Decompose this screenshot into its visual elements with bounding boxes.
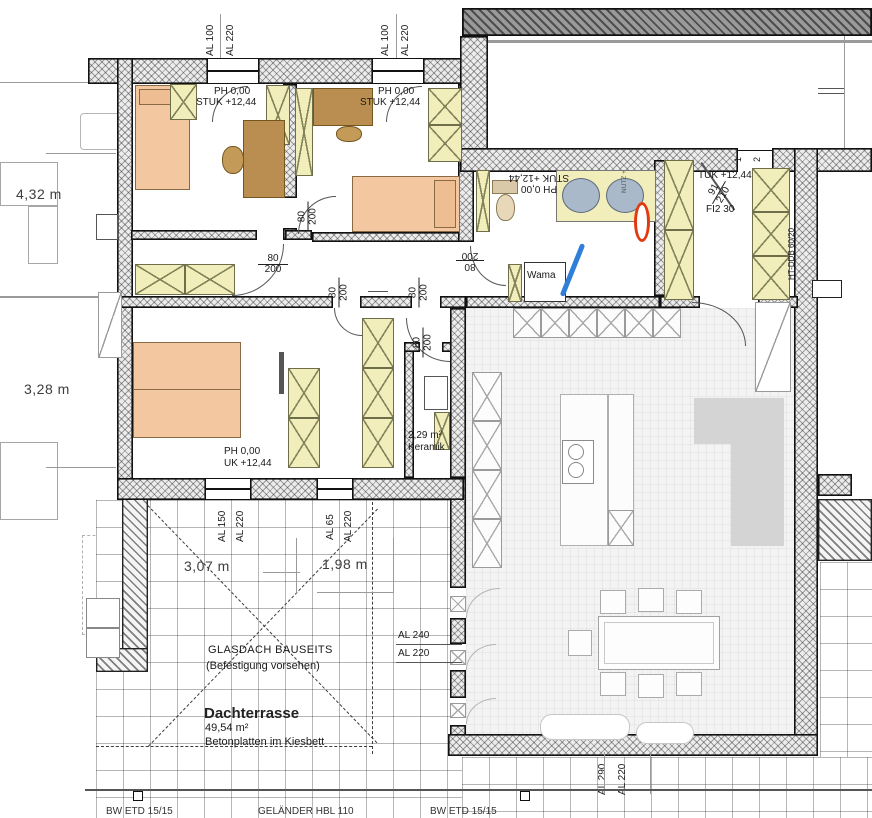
window-label: AL 150 <box>217 511 228 542</box>
door-height: 200 <box>456 250 484 260</box>
kitchen-appliance <box>608 510 634 546</box>
dining-chair <box>600 590 626 614</box>
dimension-label: 3,07 m <box>184 558 230 574</box>
wall <box>131 230 257 240</box>
door-size-label: 80 200 <box>413 328 434 358</box>
kitchen-cabinet <box>541 308 569 338</box>
wardrobe <box>664 160 694 230</box>
folding-door-panel <box>450 596 466 612</box>
door-size-label: 80 200 <box>456 250 484 271</box>
radiator <box>279 352 284 394</box>
level-label-upside-down: PH 0,00 STUK +12,44 <box>504 172 574 194</box>
terrace-name: Dachterrasse <box>204 705 299 722</box>
wall <box>818 474 852 496</box>
folding-door-panel <box>450 703 466 718</box>
window-label: AL 100 <box>205 25 216 56</box>
wall-edge-line <box>478 40 872 43</box>
wardrobe <box>288 368 320 418</box>
wall <box>440 296 466 308</box>
window-label: AL 220 <box>235 511 246 542</box>
window-label: AL 220 <box>400 25 411 56</box>
bath-cabinet <box>508 264 522 302</box>
washing-machine-label: Wama <box>527 270 556 281</box>
dining-table <box>598 616 720 670</box>
door-swing-arc <box>334 308 362 336</box>
level-line: STUK +12,44 <box>504 172 574 183</box>
wall <box>404 342 414 478</box>
wall <box>258 58 373 84</box>
door-size-label: 80 200 <box>409 278 430 308</box>
window <box>206 478 250 500</box>
kitchen-tall-cabinet <box>472 470 502 519</box>
terrace-note: Betonplatten im Kiesbett <box>205 737 324 748</box>
adjacent-building-wall <box>462 8 872 36</box>
radiator-niche <box>96 214 118 240</box>
neighbor-furniture <box>0 442 58 520</box>
dimension-label: 1,98 m <box>322 556 368 572</box>
burner <box>568 462 584 478</box>
kitchen-tall-cabinet <box>472 372 502 421</box>
shelf <box>295 88 313 176</box>
level-label: UK +12,44 <box>224 458 272 469</box>
door-size-label: 80 200 <box>298 202 319 232</box>
door-height: 200 <box>258 265 288 275</box>
sofa-cushion <box>540 714 630 740</box>
desk <box>243 120 285 198</box>
post-marker <box>133 791 143 801</box>
window-label: AL 65 <box>325 514 336 540</box>
shower <box>424 376 448 410</box>
break-symbol <box>818 88 844 89</box>
wardrobe <box>362 318 394 368</box>
wall <box>450 618 466 644</box>
duct-label: HT-DDB 60/20 <box>786 228 797 280</box>
bed-pillow <box>434 180 456 228</box>
kitchen-cabinet <box>597 308 625 338</box>
floor-plan: Wama 80 200 80 <box>0 0 872 818</box>
dimension-label: 4,32 m <box>16 186 62 202</box>
bath-area-label: 2,29 m² <box>408 430 442 441</box>
door-size-label: 80 200 <box>258 254 288 275</box>
wall <box>450 670 466 698</box>
wall <box>88 58 208 84</box>
dimension-line <box>46 467 116 468</box>
door-height: 200 <box>420 278 430 308</box>
terrace-parapet <box>122 478 148 658</box>
wall <box>250 478 318 500</box>
terrace-edge-box <box>86 598 120 628</box>
window-label: AL 220 <box>398 648 429 659</box>
level-label: PH 0,00 <box>378 86 414 97</box>
window <box>318 478 352 500</box>
kitchen-tall-cabinet <box>472 519 502 568</box>
window-label: AL 220 <box>225 25 236 56</box>
edge-label: GELÄNDER HBL 110 <box>258 806 354 817</box>
sofa-cushion <box>636 722 694 744</box>
dimension-line <box>317 592 393 593</box>
wall <box>360 296 412 308</box>
wardrobe <box>288 418 320 468</box>
wardrobe <box>428 125 462 162</box>
glass-roof-label: (Befestigung vorsehen) <box>206 661 320 672</box>
door-width: 80 <box>456 260 484 271</box>
position-tag: 2 <box>752 157 763 162</box>
window <box>208 58 258 84</box>
wall <box>117 58 133 500</box>
wardrobe <box>362 368 394 418</box>
door-height: 200 <box>309 202 319 232</box>
dimension-line <box>263 572 300 573</box>
kitchen-counter <box>608 394 634 516</box>
bath-cabinet <box>476 170 490 232</box>
kitchen-cabinet <box>625 308 653 338</box>
wardrobe <box>428 88 462 125</box>
wall-edge-line <box>844 36 845 148</box>
wall <box>117 478 206 500</box>
post-marker <box>520 791 530 801</box>
glass-roof-outline <box>372 502 373 754</box>
wardrobe <box>185 264 235 295</box>
direction-arrow <box>368 291 388 292</box>
kitchen-cabinet <box>513 308 541 338</box>
toilet-bowl <box>496 194 515 221</box>
dresser <box>170 84 197 120</box>
kitchen-tall-cabinet <box>472 421 502 470</box>
level-label: PH 0,00 <box>224 446 260 457</box>
entry-door-note: FI2 30 <box>706 204 734 215</box>
wall <box>450 308 466 478</box>
sofa <box>694 398 784 444</box>
terrace-floor <box>96 500 462 818</box>
washing-machine <box>524 262 566 302</box>
wall <box>448 734 818 756</box>
dining-chair <box>638 588 664 612</box>
level-line: PH 0,00 <box>504 183 574 194</box>
wardrobe <box>664 230 694 300</box>
dining-chair <box>600 672 626 696</box>
dimension-line <box>46 153 116 154</box>
wall <box>460 36 488 150</box>
kitchen-cabinet <box>569 308 597 338</box>
tiny-note: NUTZ + <box>619 170 630 193</box>
wardrobe <box>135 264 185 295</box>
leader-line <box>650 752 651 794</box>
terrace-area: 49,54 m² <box>205 723 248 734</box>
duct-box <box>812 280 842 298</box>
wall <box>460 148 738 172</box>
level-label: PH 0,00 <box>214 86 250 97</box>
terrace-edge-box <box>86 628 120 658</box>
desk-chair <box>336 126 362 142</box>
railing-line <box>85 789 872 791</box>
tall-cabinet <box>755 302 791 392</box>
dimension-line <box>296 538 297 593</box>
position-tag: 1 <box>733 157 744 162</box>
window-label: AL 100 <box>380 25 391 56</box>
leader-line <box>604 752 605 794</box>
dimension-line <box>393 538 394 593</box>
wardrobe <box>752 212 790 256</box>
glass-roof-label: GLASDACH BAUSEITS <box>208 645 333 656</box>
dining-chair <box>676 590 702 614</box>
red-annotation-oval <box>634 202 650 242</box>
wardrobe <box>362 418 394 468</box>
dining-chair <box>638 674 664 698</box>
burner <box>568 444 584 460</box>
wardrobe <box>752 256 790 300</box>
window-label: AL 240 <box>398 630 429 641</box>
neighbor-furniture <box>28 206 58 264</box>
entry-level-label: TUK +12,44 <box>698 170 752 181</box>
dining-chair <box>676 672 702 696</box>
leader-line <box>220 14 221 58</box>
shaft <box>98 292 122 358</box>
label-line <box>396 662 462 663</box>
door-size-label: 80 200 <box>329 278 350 308</box>
wall <box>794 148 818 748</box>
edge-label: BW ETD 15/15 <box>430 806 497 817</box>
leader-line <box>396 14 397 58</box>
window-label: AL 220 <box>343 511 354 542</box>
kitchen-cabinet <box>653 308 681 338</box>
break-symbol <box>818 93 844 94</box>
wall <box>352 478 464 500</box>
sofa <box>731 444 784 546</box>
wall <box>117 296 333 308</box>
bed-divider <box>133 389 241 390</box>
level-label: STUK +12,44 <box>196 97 256 108</box>
level-label: STUK +12,44 <box>360 97 420 108</box>
terrace-floor-right <box>820 562 872 757</box>
bath-material-label: Keramik <box>408 442 445 453</box>
window <box>373 58 423 84</box>
terrace-floor-bottom <box>462 757 872 818</box>
door-height: 200 <box>340 278 350 308</box>
wall <box>818 499 872 561</box>
door-height: 200 <box>424 328 434 358</box>
dimension-label: 3,28 m <box>24 381 70 397</box>
label-line <box>396 644 462 645</box>
wardrobe <box>752 168 790 212</box>
desk-chair <box>222 146 244 174</box>
edge-label: BW ETD 15/15 <box>106 806 173 817</box>
dining-chair <box>568 630 592 656</box>
